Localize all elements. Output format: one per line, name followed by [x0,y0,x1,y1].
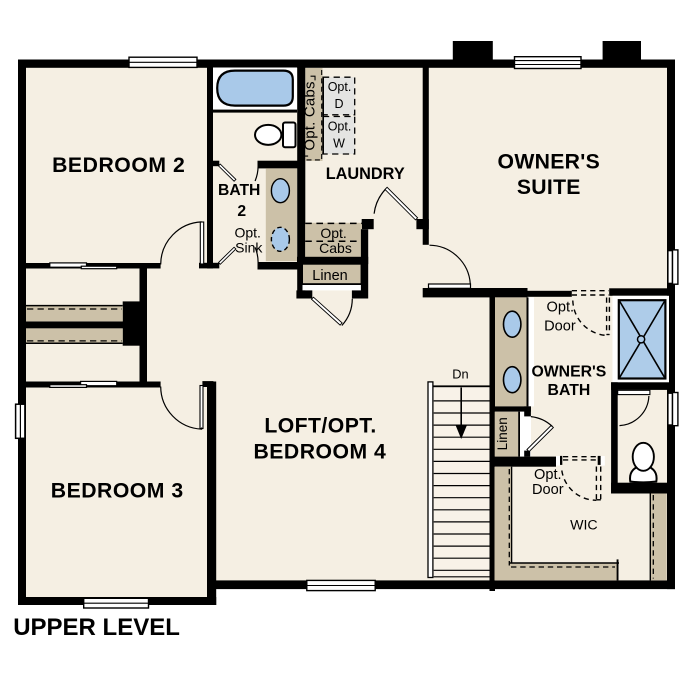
svg-text:BEDROOM 4: BEDROOM 4 [253,441,386,464]
svg-text:LAUNDRY: LAUNDRY [326,165,405,183]
svg-text:W: W [333,136,345,150]
svg-text:Opt.: Opt. [328,80,352,94]
svg-text:Cabs: Cabs [319,240,352,256]
svg-text:Opt.: Opt. [234,224,260,240]
svg-text:OWNER'S: OWNER'S [531,364,606,381]
svg-text:BATH: BATH [548,382,591,399]
svg-text:2: 2 [237,203,246,220]
svg-text:SUITE: SUITE [517,176,581,199]
svg-text:Opt.: Opt. [534,467,562,483]
svg-text:Opt.: Opt. [547,300,575,316]
svg-text:D: D [334,97,343,111]
svg-text:Sink: Sink [235,240,263,256]
svg-text:Opt.: Opt. [328,119,352,133]
svg-text:⌜Opt. Cabs⌟: ⌜Opt. Cabs⌟ [302,74,319,158]
svg-text:LOFT/OPT.: LOFT/OPT. [264,415,376,438]
svg-text:Door: Door [532,482,564,498]
svg-text:Linen: Linen [312,268,347,284]
svg-text:Linen: Linen [495,417,510,450]
svg-text:Opt.: Opt. [320,225,346,241]
svg-text:OWNER'S: OWNER'S [498,150,600,173]
svg-text:BEDROOM 2: BEDROOM 2 [52,154,185,177]
svg-text:WIC: WIC [570,517,598,533]
svg-text:BEDROOM 3: BEDROOM 3 [51,479,184,502]
svg-text:BATH: BATH [218,182,260,199]
svg-text:UPPER LEVEL: UPPER LEVEL [13,614,180,641]
svg-text:Door: Door [544,319,576,335]
svg-text:Dn: Dn [452,367,468,382]
